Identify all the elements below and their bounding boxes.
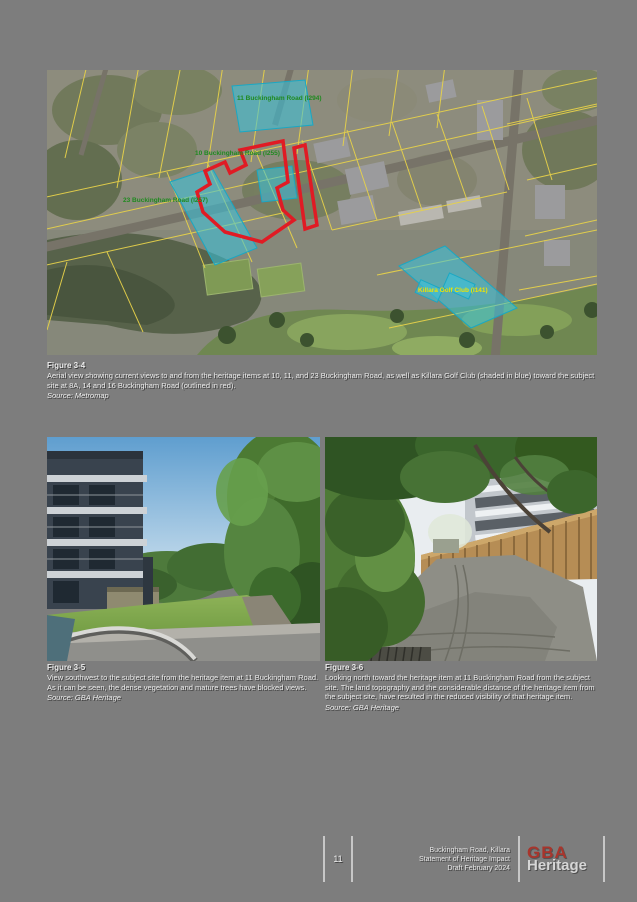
figure-3-4-caption-block: Figure 3-4 Aerial view showing current v… — [47, 361, 597, 401]
map-label-23-buckingham: 23 Buckingham Road (I257) — [123, 197, 208, 204]
map-label-golf-club: Killara Golf Club (I141) — [418, 287, 488, 294]
apartment-building — [47, 451, 159, 617]
photo-driveway-north — [325, 437, 597, 661]
footer-divider — [603, 836, 605, 882]
document-meta: Buckingham Road, Killara Statement of He… — [353, 836, 518, 882]
figure-3-5-text: View southwest to the subject site from … — [47, 673, 320, 692]
logo-heritage-text: Heritage — [527, 859, 603, 873]
overlay-10-buckingham — [257, 166, 297, 202]
photo-view-southwest — [47, 437, 320, 661]
gba-heritage-logo: GBA Heritage — [520, 836, 603, 882]
figure-3-6-caption-block: Figure 3-6 Looking north toward the heri… — [325, 663, 597, 712]
document-date: Draft February 2024 — [361, 864, 510, 873]
figure-3-6-source: Source: GBA Heritage — [325, 703, 597, 713]
document-title: Buckingham Road, Killara — [361, 846, 510, 855]
map-label-10-buckingham: 10 Buckingham Road (I255) — [195, 150, 280, 157]
page-footer: 11 Buckingham Road, Killara Statement of… — [323, 836, 605, 882]
figure-3-6-text: Looking north toward the heritage item a… — [325, 673, 597, 702]
figure-3-4-heading: Figure 3-4 — [47, 361, 597, 370]
figure-3-5-heading: Figure 3-5 — [47, 663, 320, 672]
figure-3-6-heading: Figure 3-6 — [325, 663, 597, 672]
figure-3-5-caption-block: Figure 3-5 View southwest to the subject… — [47, 663, 320, 703]
figure-3-5-source: Source: GBA Heritage — [47, 693, 320, 703]
overlay-11-buckingham — [232, 80, 313, 132]
document-subtitle: Statement of Heritage Impact — [361, 855, 510, 864]
map-label-11-buckingham: 11 Buckingham Road (I294) — [237, 95, 322, 102]
figure-3-4-text: Aerial view showing current views to and… — [47, 371, 597, 390]
figure-3-4-source: Source: Metromap — [47, 391, 597, 401]
report-page: 11 Buckingham Road (I294) 10 Buckingham … — [0, 0, 637, 902]
aerial-map-image: 11 Buckingham Road (I294) 10 Buckingham … — [47, 70, 597, 355]
page-number: 11 — [325, 836, 351, 882]
